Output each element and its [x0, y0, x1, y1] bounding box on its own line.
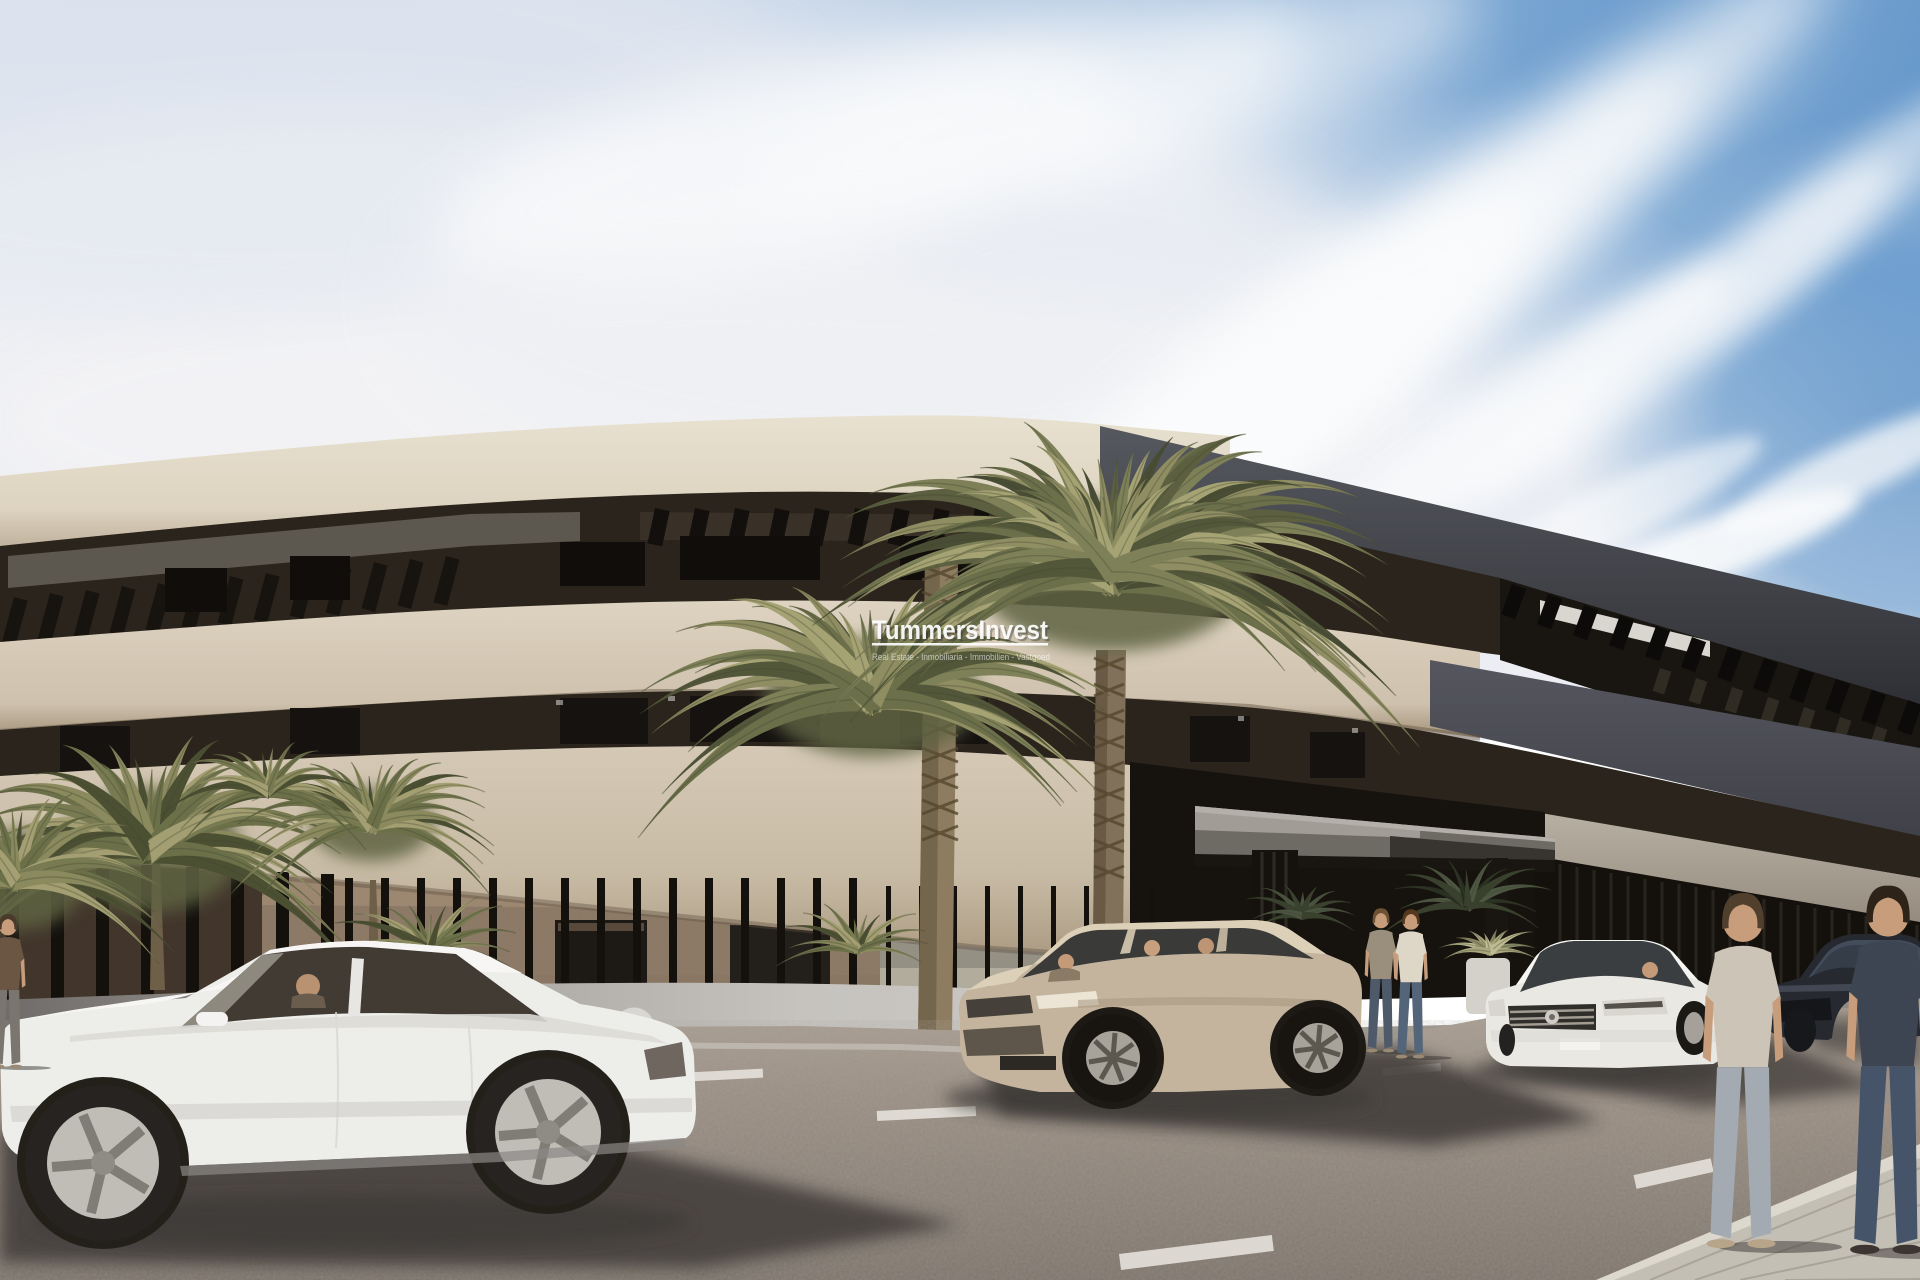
svg-text:TummersInvest: TummersInvest	[872, 615, 1048, 645]
svg-text:Real Estate - Inmobiliaria - I: Real Estate - Inmobiliaria - Immobilien …	[872, 652, 1050, 663]
